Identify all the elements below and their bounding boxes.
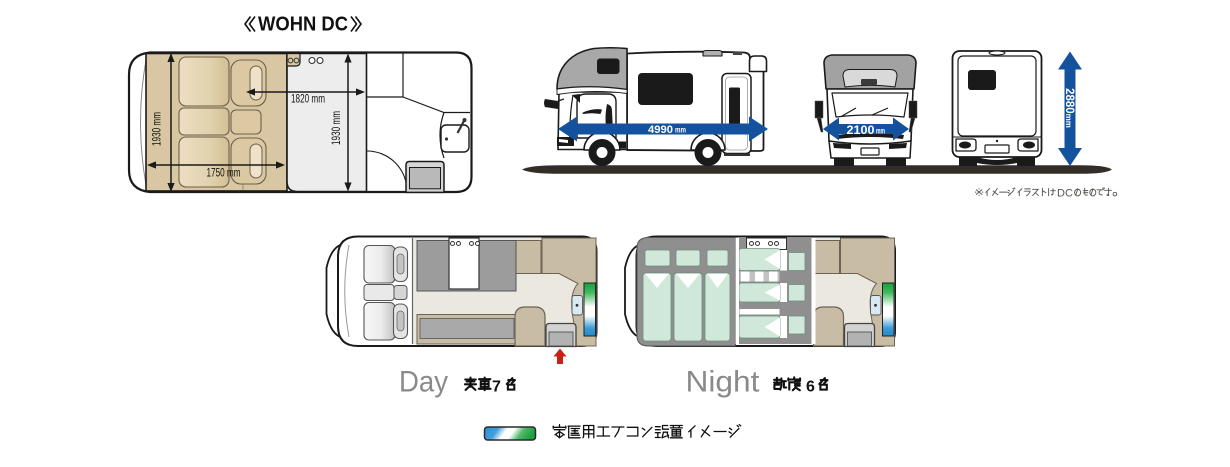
- svg-text:6: 6: [806, 379, 815, 396]
- svg-text:7: 7: [492, 379, 501, 396]
- svg-text:mm: mm: [675, 126, 686, 135]
- svg-text:DC: DC: [1057, 188, 1073, 200]
- svg-text:1820 mm: 1820 mm: [291, 94, 325, 106]
- svg-text:1930 mm: 1930 mm: [152, 112, 164, 146]
- svg-text:WOHN DC: WOHN DC: [258, 14, 348, 36]
- svg-text:1930 mm: 1930 mm: [331, 111, 343, 145]
- svg-text:4990: 4990: [648, 124, 673, 136]
- svg-text:1750 mm: 1750 mm: [207, 168, 241, 180]
- svg-text:mm: mm: [876, 127, 885, 136]
- svg-text:Day: Day: [399, 366, 448, 399]
- svg-text:Night: Night: [686, 366, 760, 399]
- svg-text:2100: 2100: [847, 123, 875, 137]
- svg-text:2880mm: 2880mm: [1063, 88, 1075, 128]
